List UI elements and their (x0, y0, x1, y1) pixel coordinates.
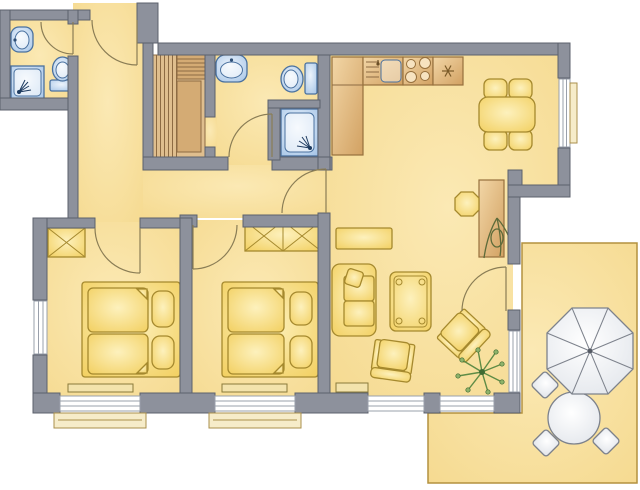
dining-chair (484, 79, 507, 99)
burner-icon (407, 60, 416, 69)
pillow (290, 292, 312, 325)
kitchen-cabinet-column (332, 57, 363, 155)
living-radiator (336, 383, 368, 392)
parasol-pole (588, 349, 593, 354)
pillow (152, 336, 174, 369)
desk-chair (455, 192, 479, 216)
shower (11, 66, 44, 99)
bedroom-1-side-window (34, 301, 47, 354)
mattress (88, 334, 148, 374)
burner-icon (420, 58, 431, 69)
double-bed (82, 282, 180, 377)
sauna-cabinet (177, 81, 201, 152)
dining-chair (509, 79, 532, 99)
wardrobe-icon (48, 228, 85, 257)
living-window-2 (440, 396, 494, 411)
bedroom-1-window (54, 396, 146, 428)
living-side-window (509, 331, 520, 392)
dining-table (479, 97, 535, 132)
sideboard (336, 228, 392, 249)
mattress (88, 288, 148, 332)
burner-icon (406, 72, 417, 83)
bedroom-2-window (209, 396, 301, 428)
floor-plan (0, 0, 640, 490)
sofa (332, 264, 376, 336)
burner-icon (421, 72, 430, 81)
sofa-cushion (344, 301, 374, 326)
mattress (228, 288, 284, 332)
sauna (153, 55, 205, 157)
bedroom-1-radiator (68, 384, 133, 392)
faucet-icon (230, 58, 233, 61)
plant-center (479, 369, 485, 375)
dining-chair (484, 130, 507, 150)
faucet-icon (13, 38, 16, 41)
kitchen-sink-basin (381, 60, 401, 82)
floor-plan-svg (0, 0, 640, 490)
bedroom-2-radiator (222, 384, 287, 392)
terrace-round-table (548, 392, 600, 444)
parasol (547, 308, 633, 394)
shower-cabin (281, 109, 318, 156)
pillow (152, 291, 174, 327)
coffee-table (390, 272, 431, 331)
dining-window (559, 79, 577, 147)
living-window-1 (368, 396, 424, 411)
entrance-hall-floor (73, 3, 143, 223)
dining-chair (509, 130, 532, 150)
mattress (228, 334, 284, 374)
dining-area (479, 79, 535, 150)
armchair (370, 338, 415, 382)
double-bed (222, 282, 318, 377)
pillow (290, 336, 312, 368)
